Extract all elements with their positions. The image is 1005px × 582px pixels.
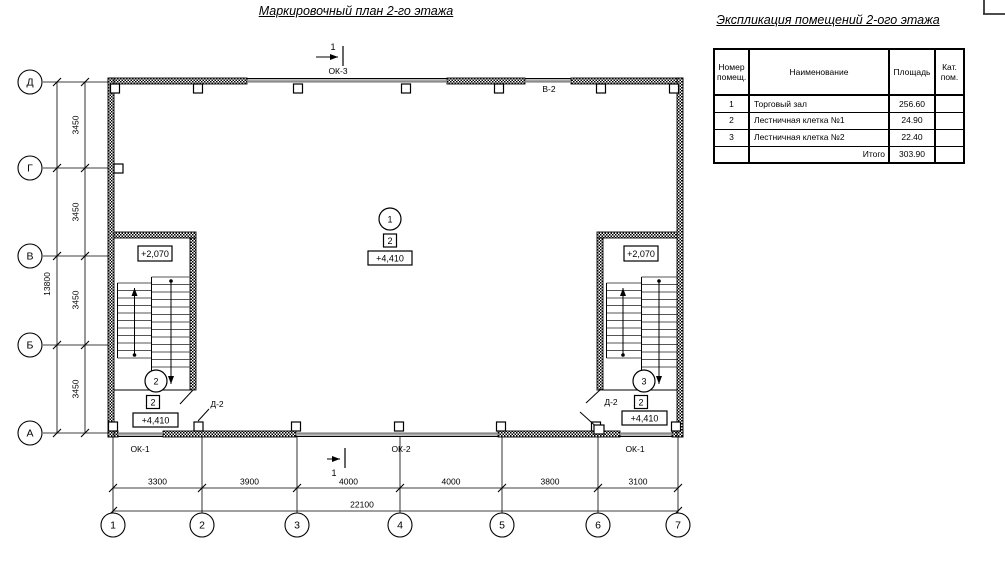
explication-table: Номер помещ. Наименование Площадь Кат. п… xyxy=(713,48,965,164)
axis-label: 4 xyxy=(397,520,403,532)
cell-number xyxy=(714,146,749,163)
cell-area: 22.40 xyxy=(889,129,935,146)
window-label-ok1-right: ОК-1 xyxy=(625,444,644,454)
cell-category xyxy=(935,112,964,129)
cell-number: 1 xyxy=(714,95,749,112)
cell-name: Торговый зал xyxy=(749,95,889,112)
svg-text:3450: 3450 xyxy=(71,379,81,398)
svg-text:3800: 3800 xyxy=(541,477,560,487)
svg-text:1: 1 xyxy=(330,42,335,52)
door-label-right: Д-2 xyxy=(604,397,618,407)
elevation-mark: +4,410 xyxy=(631,414,659,424)
axis-label: Д xyxy=(26,77,33,89)
table-row: 3 Лестничная клетка №2 22.40 xyxy=(714,129,964,146)
room-category: 2 xyxy=(387,236,392,246)
total-dimension: 13800 xyxy=(42,272,52,296)
dimension-ticks xyxy=(109,484,682,515)
svg-text:3900: 3900 xyxy=(240,477,259,487)
section-mark-bottom: 1 xyxy=(327,448,345,478)
svg-text:4000: 4000 xyxy=(339,477,358,487)
table-header-row: Номер помещ. Наименование Площадь Кат. п… xyxy=(714,49,964,95)
elevation-mark: +4,410 xyxy=(142,416,170,426)
cell-total-area: 303.90 xyxy=(889,146,935,163)
room-number: 2 xyxy=(153,377,158,387)
elevation-mark: +2,070 xyxy=(627,249,655,259)
cell-number: 3 xyxy=(714,129,749,146)
cell-category xyxy=(935,146,964,163)
door-left xyxy=(180,390,209,431)
sheet-frame-corner xyxy=(983,0,1005,14)
svg-text:3100: 3100 xyxy=(629,477,648,487)
elevation-mark: +2,070 xyxy=(141,249,169,259)
svg-text:3450: 3450 xyxy=(71,290,81,309)
table-row: 1 Торговый зал 256.60 xyxy=(714,95,964,112)
table-total-row: Итого 303.90 xyxy=(714,146,964,163)
axis-label: 7 xyxy=(675,520,681,532)
axis-label: 6 xyxy=(595,520,601,532)
axis-label: 5 xyxy=(499,520,505,532)
axis-label: А xyxy=(26,428,33,440)
cell-number: 2 xyxy=(714,112,749,129)
svg-text:3300: 3300 xyxy=(148,477,167,487)
room-number: 1 xyxy=(387,215,392,225)
table-row: 2 Лестничная клетка №1 24.90 xyxy=(714,112,964,129)
axis-label: 2 xyxy=(199,520,205,532)
col-header-area: Площадь xyxy=(889,49,935,95)
col-header-number: Номер помещ. xyxy=(714,49,749,95)
col-dimension-lines xyxy=(113,488,678,511)
col-header-name: Наименование xyxy=(749,49,889,95)
room-category: 2 xyxy=(150,398,155,408)
door-label-left: Д-2 xyxy=(210,399,224,409)
cell-name: Лестничная клетка №2 xyxy=(749,129,889,146)
cell-category xyxy=(935,129,964,146)
svg-text:1: 1 xyxy=(331,468,336,478)
drawing-sheet: Маркировочный план 2-го этажа Экспликаци… xyxy=(0,0,1005,582)
room-number: 3 xyxy=(641,377,646,387)
window-label-ok3: ОК-3 xyxy=(328,66,347,76)
window-label-ok2: ОК-2 xyxy=(391,444,410,454)
axis-label: Б xyxy=(27,340,34,352)
axis-label: В xyxy=(26,251,33,263)
window-label-v2: В-2 xyxy=(542,84,556,94)
row-dimension-labels: 3450 3450 3450 3450 13800 xyxy=(42,115,81,398)
window-label-ok1-left: ОК-1 xyxy=(130,444,149,454)
svg-text:3450: 3450 xyxy=(71,202,81,221)
row-axis-bubbles: Д Г В Б А xyxy=(18,70,42,445)
col-dimension-labels: 3300 3900 4000 4000 3800 3100 22100 xyxy=(148,477,648,510)
svg-text:3450: 3450 xyxy=(71,115,81,134)
section-mark-top: 1 xyxy=(316,42,343,66)
room-marker-hall: 1 2 +4,410 xyxy=(368,208,412,265)
elevation-mark: +4,410 xyxy=(376,254,404,264)
cell-total-label: Итого xyxy=(749,146,889,163)
cell-category xyxy=(935,95,964,112)
cell-area: 256.60 xyxy=(889,95,935,112)
cell-name: Лестничная клетка №1 xyxy=(749,112,889,129)
room-category: 2 xyxy=(638,398,643,408)
col-header-category: Кат. пом. xyxy=(935,49,964,95)
cell-area: 24.90 xyxy=(889,112,935,129)
total-dimension: 22100 xyxy=(350,500,374,510)
axis-label: Г xyxy=(27,163,33,175)
axis-label: 1 xyxy=(110,520,116,532)
axis-label: 3 xyxy=(294,520,300,532)
col-axis-bubbles: 1 2 3 4 5 6 7 xyxy=(101,513,690,537)
svg-text:4000: 4000 xyxy=(442,477,461,487)
